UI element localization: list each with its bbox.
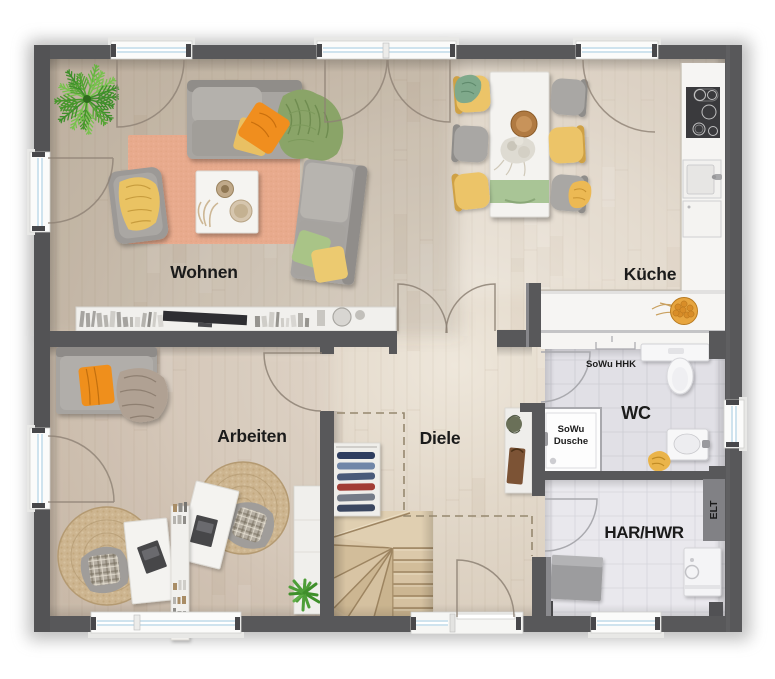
svg-text:Arbeiten: Arbeiten [217,426,286,446]
svg-text:ELT: ELT [708,500,720,520]
svg-text:Diele: Diele [420,428,461,448]
svg-text:SoWu: SoWu [558,424,585,435]
svg-text:Wohnen: Wohnen [170,262,238,282]
svg-text:SoWu HHK: SoWu HHK [586,359,636,370]
svg-text:HAR/HWR: HAR/HWR [604,523,683,542]
svg-text:Küche: Küche [624,264,677,284]
svg-text:WC: WC [621,403,651,423]
svg-text:Dusche: Dusche [554,436,588,447]
